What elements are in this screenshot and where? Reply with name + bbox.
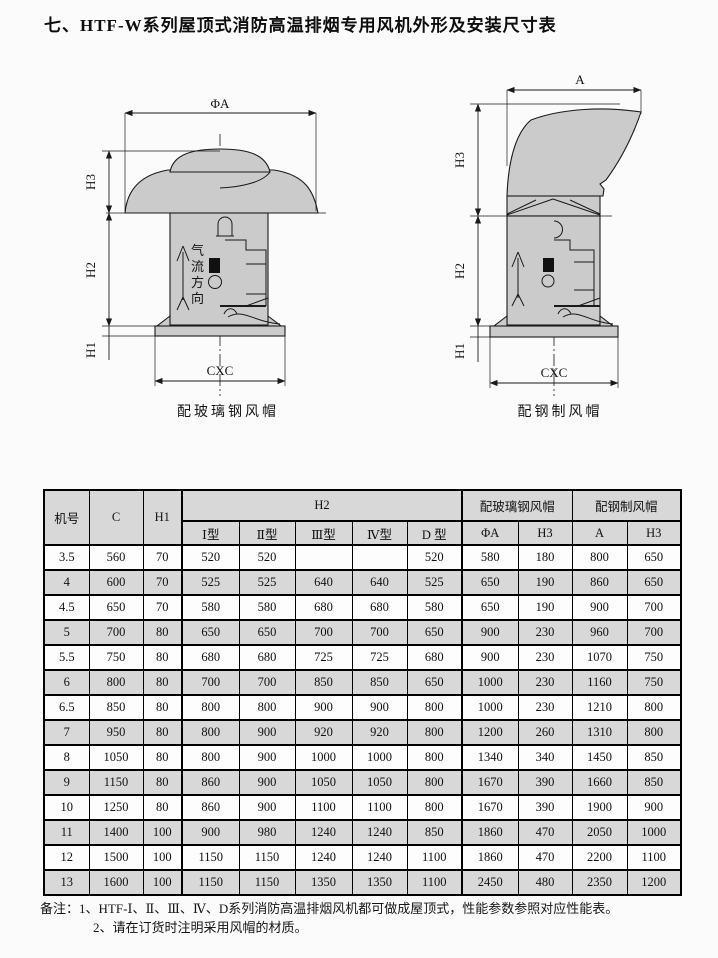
- table-cell: 1660: [572, 770, 627, 795]
- table-cell: 750: [89, 645, 143, 670]
- table-cell: 1000: [462, 670, 518, 695]
- table-cell: 1150: [239, 870, 295, 895]
- table-cell: 650: [627, 545, 681, 570]
- diagram-fiberglass-hood: ΦA H3 H2 H1 CXC 气 流 方 向 配玻璃钢风帽: [78, 70, 378, 421]
- table-cell: 900: [462, 645, 518, 670]
- dim-base-label: CXC: [541, 365, 568, 380]
- steel-hood: [507, 109, 641, 196]
- table-cell: 700: [627, 595, 681, 620]
- header-h3-steel: H3: [627, 521, 681, 545]
- table-cell: 190: [518, 595, 572, 620]
- table-cell: 1250: [89, 795, 143, 820]
- table-cell: 5.5: [44, 645, 89, 670]
- table-cell: 1400: [89, 820, 143, 845]
- foot-left: [494, 316, 507, 326]
- table-cell: 4: [44, 570, 89, 595]
- table-cell: 580: [462, 545, 518, 570]
- table-cell: 650: [407, 670, 462, 695]
- table-cell: 650: [627, 570, 681, 595]
- table-cell: 680: [182, 645, 239, 670]
- table-cell: 800: [407, 745, 462, 770]
- table-cell: 1240: [295, 820, 352, 845]
- table-cell: 1500: [89, 845, 143, 870]
- table-cell: 600: [89, 570, 143, 595]
- table-cell: 6.5: [44, 695, 89, 720]
- table-cell: 650: [462, 570, 518, 595]
- dim-h1-label: H1: [452, 343, 467, 359]
- table-cell: 800: [627, 695, 681, 720]
- table-cell: 650: [182, 620, 239, 645]
- table-cell: 2200: [572, 845, 627, 870]
- table-cell: 800: [627, 720, 681, 745]
- table-cell: 800: [182, 695, 239, 720]
- table-cell: 1000: [627, 820, 681, 845]
- table-cell: 2350: [572, 870, 627, 895]
- table-cell: 680: [352, 595, 407, 620]
- table-cell: 800: [407, 695, 462, 720]
- table-row: 6.58508080080090090080010002301210800: [44, 695, 681, 720]
- header-fiberglass-group: 配玻璃钢风帽: [462, 490, 572, 521]
- table-cell: 1000: [462, 695, 518, 720]
- header-type-2: Ⅱ型: [239, 521, 295, 545]
- dim-h2-label: H2: [452, 263, 467, 279]
- table-cell: 1160: [572, 670, 627, 695]
- table-cell: 340: [518, 745, 572, 770]
- notes-prefix: 备注：: [40, 899, 79, 937]
- table-cell: 1100: [407, 845, 462, 870]
- table-cell: 860: [182, 770, 239, 795]
- table-cell: 920: [352, 720, 407, 745]
- table-cell: 520: [407, 545, 462, 570]
- table-cell: 900: [239, 745, 295, 770]
- dim-h3-label: H3: [452, 152, 467, 168]
- table-cell: 900: [239, 770, 295, 795]
- foot-right: [600, 316, 613, 326]
- table-cell: 980: [239, 820, 295, 845]
- table-row: 570080650650700700650900230960700: [44, 620, 681, 645]
- table-row: 91150808609001050105080016703901660850: [44, 770, 681, 795]
- table-cell: 1150: [182, 845, 239, 870]
- foot-left: [157, 316, 170, 326]
- table-header: 机号 C H1 H2 配玻璃钢风帽 配钢制风帽 Ⅰ型 Ⅱ型 Ⅲ型 Ⅳ型 D 型 …: [44, 490, 681, 545]
- table-cell: 80: [143, 745, 182, 770]
- steel-fan-drawing: A H3 H2 H1 CXC: [430, 70, 690, 405]
- hub-block: [543, 258, 554, 272]
- table-cell: 850: [627, 770, 681, 795]
- table-cell: 7: [44, 720, 89, 745]
- table-cell: 230: [518, 670, 572, 695]
- table-cell: 1200: [462, 720, 518, 745]
- table-cell: 260: [518, 720, 572, 745]
- table-cell: 1600: [89, 870, 143, 895]
- table-cell: 850: [407, 820, 462, 845]
- table-cell: 800: [182, 720, 239, 745]
- table-cell: 1200: [627, 870, 681, 895]
- table-cell: 750: [627, 670, 681, 695]
- table-cell: 900: [239, 795, 295, 820]
- table-cell: 1100: [295, 795, 352, 820]
- table-cell: 520: [239, 545, 295, 570]
- table-cell: 100: [143, 845, 182, 870]
- table-cell: 2050: [572, 820, 627, 845]
- table-cell: 1150: [239, 845, 295, 870]
- table-cell: 800: [407, 795, 462, 820]
- table-cell: 11: [44, 820, 89, 845]
- table-cell: 1150: [182, 870, 239, 895]
- header-model: 机号: [44, 490, 89, 545]
- table-cell: 9: [44, 770, 89, 795]
- base-flange: [490, 326, 618, 337]
- header-h1: H1: [143, 490, 182, 545]
- table-row: 460070525525640640525650190860650: [44, 570, 681, 595]
- table-cell: 1860: [462, 845, 518, 870]
- table-cell: 725: [295, 645, 352, 670]
- table-row: 4.565070580580680680580650190900700: [44, 595, 681, 620]
- table-cell: 800: [239, 695, 295, 720]
- table-cell: 725: [352, 645, 407, 670]
- table-cell: 860: [572, 570, 627, 595]
- table-cell: 70: [143, 570, 182, 595]
- dim-h2-label: H2: [83, 262, 98, 278]
- table-row: 79508080090092092080012002601310800: [44, 720, 681, 745]
- table-cell: 1240: [295, 845, 352, 870]
- table-cell: 1100: [407, 870, 462, 895]
- table-cell: 800: [572, 545, 627, 570]
- table-cell: [352, 545, 407, 570]
- table-cell: 700: [182, 670, 239, 695]
- table-cell: 480: [518, 870, 572, 895]
- table-cell: 640: [295, 570, 352, 595]
- table-row: 1215001001150115012401240110018604702200…: [44, 845, 681, 870]
- header-h3-fiberglass: H3: [518, 521, 572, 545]
- table-cell: 70: [143, 595, 182, 620]
- table-cell: 650: [89, 595, 143, 620]
- table-cell: 900: [462, 620, 518, 645]
- table-cell: 12: [44, 845, 89, 870]
- table-cell: 2450: [462, 870, 518, 895]
- table-cell: 680: [407, 645, 462, 670]
- table-cell: 8: [44, 745, 89, 770]
- table-cell: 190: [518, 570, 572, 595]
- table-header-row-1: 机号 C H1 H2 配玻璃钢风帽 配钢制风帽: [44, 490, 681, 521]
- table-cell: 80: [143, 720, 182, 745]
- table-cell: [295, 545, 352, 570]
- table-row: 101250808609001100110080016703901900900: [44, 795, 681, 820]
- dimension-table: 机号 C H1 H2 配玻璃钢风帽 配钢制风帽 Ⅰ型 Ⅱ型 Ⅲ型 Ⅳ型 D 型 …: [43, 489, 682, 896]
- header-h2-group: H2: [182, 490, 462, 521]
- table-cell: 1310: [572, 720, 627, 745]
- airflow-char: 向: [191, 291, 204, 307]
- table-cell: 1350: [352, 870, 407, 895]
- table-row: 1316001001150115013501350110024504802350…: [44, 870, 681, 895]
- table-cell: 6: [44, 670, 89, 695]
- table-cell: 80: [143, 770, 182, 795]
- table-cell: 700: [352, 620, 407, 645]
- table-cell: 1450: [572, 745, 627, 770]
- table-cell: 800: [407, 770, 462, 795]
- table-cell: 390: [518, 795, 572, 820]
- header-steel-group: 配钢制风帽: [572, 490, 681, 521]
- header-a-steel: A: [572, 521, 627, 545]
- table-cell: 900: [352, 695, 407, 720]
- table-cell: 1670: [462, 770, 518, 795]
- table-cell: 1670: [462, 795, 518, 820]
- table-cell: 1350: [295, 870, 352, 895]
- table-cell: 900: [627, 795, 681, 820]
- table-cell: 470: [518, 820, 572, 845]
- dim-h3-label: H3: [83, 174, 98, 190]
- dim-width-label: A: [575, 72, 585, 87]
- table-cell: 1100: [352, 795, 407, 820]
- table-cell: 580: [407, 595, 462, 620]
- table-cell: 1210: [572, 695, 627, 720]
- document-page: 七、HTF-W系列屋顶式消防高温排烟专用风机外形及安装尺寸表: [0, 0, 718, 958]
- dim-diameter-label: ΦA: [211, 96, 231, 111]
- table-cell: 680: [295, 595, 352, 620]
- hood-dome: [170, 149, 270, 172]
- table-cell: 960: [572, 620, 627, 645]
- notes-lines: 1、HTF-Ⅰ、Ⅱ、Ⅲ、Ⅳ、D系列消防高温排烟风机都可做成屋顶式，性能参数参照对…: [79, 899, 618, 937]
- table-cell: 13: [44, 870, 89, 895]
- table-cell: 390: [518, 770, 572, 795]
- table-cell: 700: [89, 620, 143, 645]
- table-cell: 1050: [352, 770, 407, 795]
- table-cell: 850: [352, 670, 407, 695]
- table-cell: 920: [295, 720, 352, 745]
- table-cell: 1000: [295, 745, 352, 770]
- foot-right: [268, 316, 281, 326]
- base-flange: [155, 326, 285, 336]
- table-cell: 1070: [572, 645, 627, 670]
- table-cell: 3.5: [44, 545, 89, 570]
- hub-block: [209, 258, 220, 273]
- airflow-char: 气: [191, 243, 204, 259]
- diagram-steel-hood: A H3 H2 H1 CXC 配钢制风帽: [430, 70, 690, 421]
- table-cell: 1050: [89, 745, 143, 770]
- table-cell: 80: [143, 795, 182, 820]
- table-cell: 800: [89, 670, 143, 695]
- table-cell: 1100: [627, 845, 681, 870]
- header-type-4: Ⅳ型: [352, 521, 407, 545]
- table-cell: 520: [182, 545, 239, 570]
- airflow-direction-label: 气 流 方 向: [191, 243, 204, 307]
- table-cell: 850: [89, 695, 143, 720]
- note-line-2: 2、请在订货时注明采用风帽的材质。: [79, 918, 618, 937]
- table-cell: 900: [239, 720, 295, 745]
- hood-brim: [125, 170, 318, 213]
- header-type-1: Ⅰ型: [182, 521, 239, 545]
- table-row: 3.556070520520520580180800650: [44, 545, 681, 570]
- table-cell: 230: [518, 695, 572, 720]
- table-cell: 1240: [352, 845, 407, 870]
- table-cell: 180: [518, 545, 572, 570]
- table-cell: 560: [89, 545, 143, 570]
- table-cell: 900: [182, 820, 239, 845]
- table-cell: 1860: [462, 820, 518, 845]
- table-cell: 700: [627, 620, 681, 645]
- header-c: C: [89, 490, 143, 545]
- table-cell: 1000: [352, 745, 407, 770]
- table-cell: 750: [627, 645, 681, 670]
- table-cell: 700: [295, 620, 352, 645]
- header-phi-a: ΦA: [462, 521, 518, 545]
- table-cell: 100: [143, 870, 182, 895]
- table-cell: 700: [239, 670, 295, 695]
- table-cell: 525: [182, 570, 239, 595]
- table-cell: 1150: [89, 770, 143, 795]
- table-cell: 950: [89, 720, 143, 745]
- table-cell: 80: [143, 620, 182, 645]
- dim-h1-label: H1: [83, 342, 98, 358]
- table-cell: 860: [182, 795, 239, 820]
- dim-base-label: CXC: [207, 363, 234, 378]
- table-row: 81050808009001000100080013403401450850: [44, 745, 681, 770]
- table-cell: 650: [407, 620, 462, 645]
- airflow-char: 流: [191, 259, 204, 275]
- table-cell: 230: [518, 620, 572, 645]
- table-cell: 230: [518, 645, 572, 670]
- table-cell: 900: [295, 695, 352, 720]
- table-cell: 1240: [352, 820, 407, 845]
- table-cell: 1900: [572, 795, 627, 820]
- table-row: 1114001009009801240124085018604702050100…: [44, 820, 681, 845]
- table-cell: 470: [518, 845, 572, 870]
- table-cell: 850: [627, 745, 681, 770]
- table-cell: 1050: [295, 770, 352, 795]
- table-cell: 850: [295, 670, 352, 695]
- table-cell: 580: [182, 595, 239, 620]
- header-type-3: Ⅲ型: [295, 521, 352, 545]
- table-cell: 70: [143, 545, 182, 570]
- fiberglass-fan-drawing: ΦA H3 H2 H1 CXC: [78, 70, 378, 405]
- table-cell: 80: [143, 670, 182, 695]
- table-row: 68008070070085085065010002301160750: [44, 670, 681, 695]
- table-cell: 525: [407, 570, 462, 595]
- table-cell: 650: [239, 620, 295, 645]
- table-cell: 525: [239, 570, 295, 595]
- table-cell: 640: [352, 570, 407, 595]
- table-cell: 5: [44, 620, 89, 645]
- table-cell: 100: [143, 820, 182, 845]
- header-type-d: D 型: [407, 521, 462, 545]
- table-cell: 80: [143, 645, 182, 670]
- table-cell: 4.5: [44, 595, 89, 620]
- table-cell: 650: [462, 595, 518, 620]
- table-cell: 800: [182, 745, 239, 770]
- diagram-caption-fiberglass: 配玻璃钢风帽: [78, 401, 378, 421]
- table-cell: 1340: [462, 745, 518, 770]
- diagram-caption-steel: 配钢制风帽: [430, 401, 690, 421]
- notes: 备注： 1、HTF-Ⅰ、Ⅱ、Ⅲ、Ⅳ、D系列消防高温排烟风机都可做成屋顶式，性能参…: [40, 899, 700, 937]
- table-cell: 680: [239, 645, 295, 670]
- note-line-1: 1、HTF-Ⅰ、Ⅱ、Ⅲ、Ⅳ、D系列消防高温排烟风机都可做成屋顶式，性能参数参照对…: [79, 899, 618, 918]
- table-cell: 10: [44, 795, 89, 820]
- table-cell: 80: [143, 695, 182, 720]
- table-body: 3.55607052052052058018080065046007052552…: [44, 545, 681, 895]
- table-cell: 900: [572, 595, 627, 620]
- page-title: 七、HTF-W系列屋顶式消防高温排烟专用风机外形及安装尺寸表: [44, 11, 557, 36]
- table-cell: 580: [239, 595, 295, 620]
- airflow-char: 方: [191, 275, 204, 291]
- table-row: 5.5750806806807257256809002301070750: [44, 645, 681, 670]
- table-cell: 800: [407, 720, 462, 745]
